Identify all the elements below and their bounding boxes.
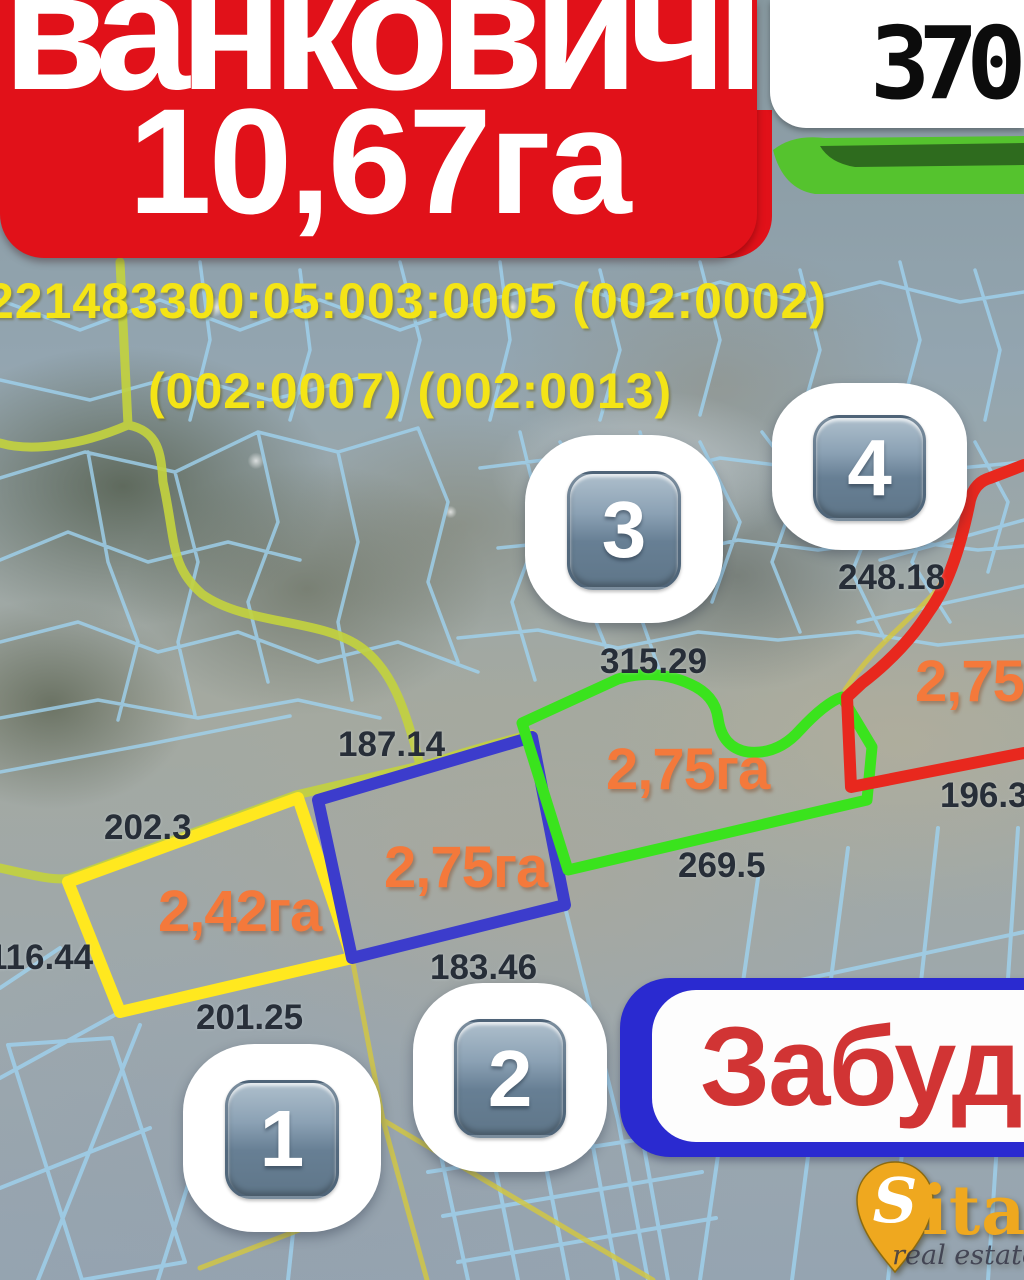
keycap-4-icon: 4 bbox=[813, 415, 926, 521]
plot-2-badge: 2 bbox=[413, 983, 607, 1172]
measurement-201-25: 201.25 bbox=[196, 998, 303, 1038]
price-box: 370 bbox=[770, 0, 1024, 128]
measurement-202-3: 202.3 bbox=[104, 808, 192, 848]
measurement-116-44: 116.44 bbox=[0, 938, 93, 978]
measurement-269-5: 269.5 bbox=[678, 846, 766, 886]
development-box: Забудова bbox=[652, 990, 1024, 1142]
keycap-3-icon: 3 bbox=[567, 471, 682, 590]
measurement-187-14: 187.14 bbox=[338, 725, 445, 765]
logo-initial: S bbox=[873, 1164, 918, 1237]
total-area-label: 10,67га bbox=[0, 86, 757, 236]
logo-brand-text: italo bbox=[922, 1171, 1024, 1251]
price-value: 370 bbox=[870, 14, 1015, 114]
land-ad-poster: ванковичі 10,67га 370 221483300:05:003:0… bbox=[0, 0, 1024, 1280]
map-pin-icon bbox=[857, 1162, 933, 1272]
ribbon-light bbox=[773, 136, 1024, 194]
ribbon-dark bbox=[820, 143, 1024, 167]
development-label: Забудова bbox=[652, 1002, 1024, 1131]
plot-3-badge: 3 bbox=[525, 435, 723, 623]
logo-tagline: real estate bbox=[892, 1240, 1024, 1271]
plot-1-area-label: 2,42га bbox=[158, 878, 321, 945]
village-road bbox=[0, 262, 532, 879]
measurement-196-3: 196.3 bbox=[940, 776, 1024, 816]
cadastral-number-line2: (002:0007) (002:0013) bbox=[148, 362, 672, 420]
plot-4-area-label: 2,75га bbox=[915, 648, 1024, 715]
keycap-1-icon: 1 bbox=[225, 1080, 340, 1199]
cadastral-number-line1: 221483300:05:003:0005 (002:0002) bbox=[0, 272, 827, 330]
plot-1-badge: 1 bbox=[183, 1044, 381, 1232]
keycap-2-icon: 2 bbox=[454, 1019, 567, 1138]
measurement-248-18: 248.18 bbox=[838, 558, 945, 598]
measurement-315-29: 315.29 bbox=[600, 642, 707, 682]
plot-2-area-label: 2,75га bbox=[384, 834, 547, 901]
plot-4-badge: 4 bbox=[772, 383, 967, 550]
plot-3-area-label: 2,75га bbox=[606, 736, 769, 803]
measurement-183-46: 183.46 bbox=[430, 948, 537, 988]
